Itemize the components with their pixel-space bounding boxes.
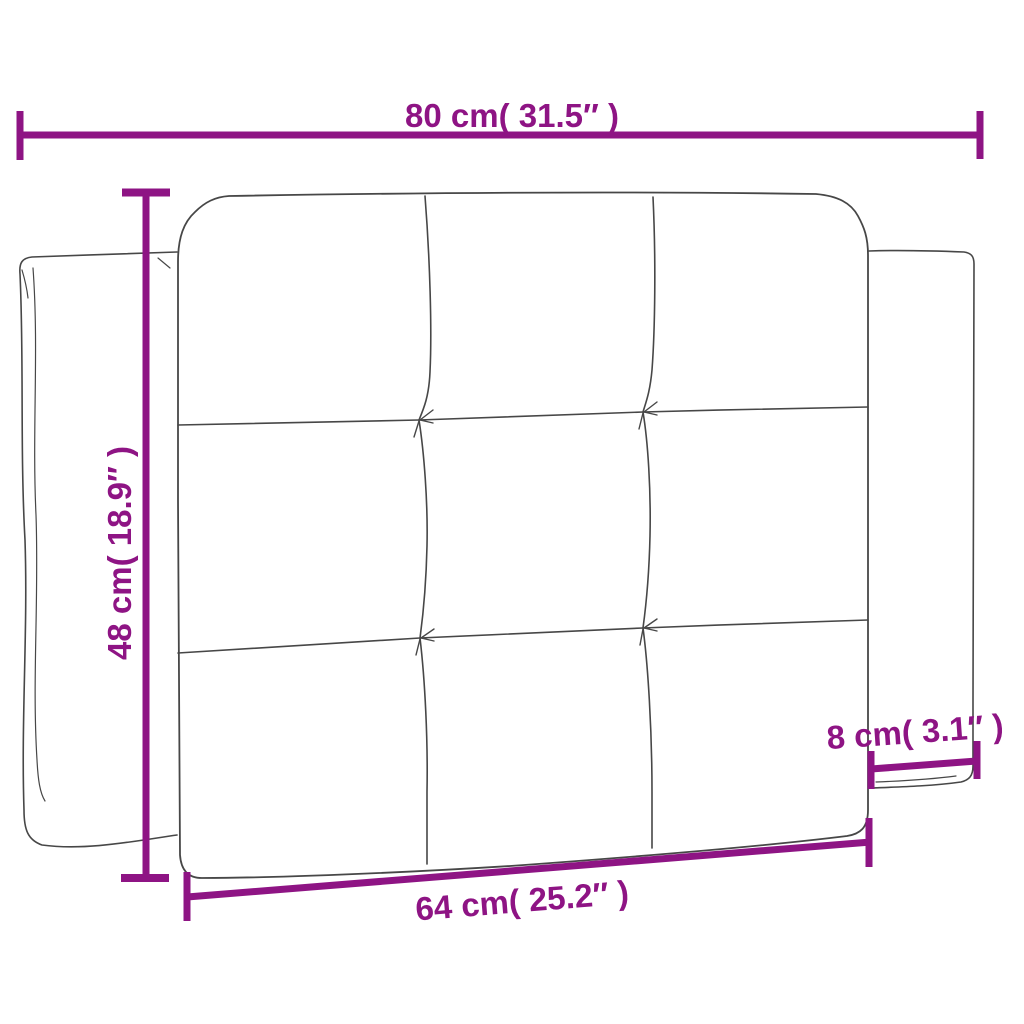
dimension-diagram-canvas: 80 cm( 31.5″ ) 48 cm( 18.9″ ) 8 cm( 3.1″… — [0, 0, 1024, 1024]
right-back-panel — [869, 251, 974, 788]
bottom-dimension-tick-left — [184, 872, 191, 921]
tuft-mark — [639, 402, 657, 429]
left-back-panel-crease — [33, 268, 45, 801]
vertical-seam-1 — [419, 196, 431, 864]
top-dimension-label: 80 cm( 31.5″ ) — [405, 97, 619, 134]
headboard-dimension-diagram: 80 cm( 31.5″ ) 48 cm( 18.9″ ) 8 cm( 3.1″… — [0, 0, 1024, 1024]
horizontal-seam-2 — [178, 620, 868, 653]
tuft-mark — [640, 619, 657, 645]
left-dimension-line — [143, 192, 150, 878]
vertical-seam-2 — [643, 197, 655, 848]
left-back-panel-corner-crease — [22, 270, 28, 298]
left-back-panel — [20, 252, 177, 847]
bottom-dimension-label: 64 cm( 25.2″ ) — [414, 873, 630, 927]
headboard-outline — [178, 193, 868, 878]
right-dimension-tick-right — [974, 741, 981, 779]
right-back-panel-crease — [876, 776, 956, 782]
bottom-dimension-tick-right — [866, 818, 873, 867]
top-dimension-tick-left — [17, 111, 24, 160]
horizontal-seam-1 — [178, 407, 868, 425]
dimension-annotations: 80 cm( 31.5″ ) 48 cm( 18.9″ ) 8 cm( 3.1″… — [17, 97, 1005, 928]
tuft-mark — [414, 410, 433, 437]
bottom-width-dimension: 64 cm( 25.2″ ) — [184, 818, 873, 928]
left-dimension-label: 48 cm( 18.9″ ) — [101, 446, 138, 660]
top-dimension-tick-right — [977, 111, 984, 159]
right-dimension-tick-left — [868, 751, 875, 789]
panel-join-crease — [158, 258, 170, 268]
right-depth-dimension: 8 cm( 3.1″ ) — [825, 707, 1004, 789]
tuft-mark — [416, 629, 434, 655]
left-height-dimension: 48 cm( 18.9″ ) — [101, 189, 170, 883]
left-dimension-tick-bottom — [121, 874, 169, 882]
right-dimension-line — [871, 758, 977, 773]
left-dimension-tick-top — [122, 189, 170, 197]
top-width-dimension: 80 cm( 31.5″ ) — [17, 97, 984, 160]
headboard-line-art — [20, 193, 974, 878]
